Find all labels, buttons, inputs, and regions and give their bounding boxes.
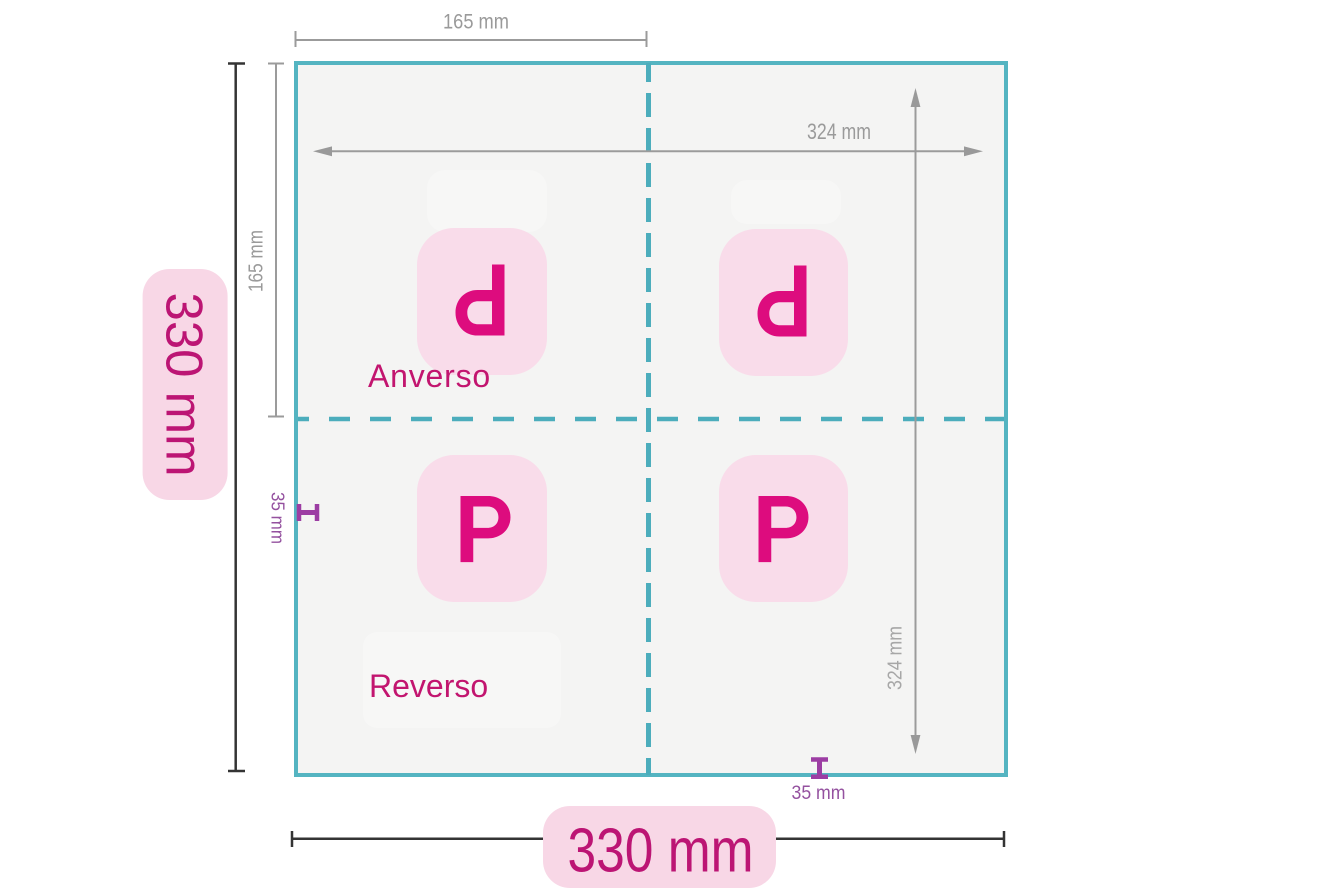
svg-text:35 mm: 35 mm — [792, 782, 846, 804]
svg-text:324 mm: 324 mm — [807, 119, 871, 144]
svg-text:330 mm: 330 mm — [568, 817, 754, 886]
svg-text:35 mm: 35 mm — [268, 492, 288, 544]
svg-text:Reverso: Reverso — [369, 668, 488, 704]
svg-text:324 mm: 324 mm — [885, 626, 907, 690]
svg-text:165 mm: 165 mm — [246, 230, 268, 292]
svg-text:330 mm: 330 mm — [155, 293, 213, 477]
svg-text:165 mm: 165 mm — [443, 10, 509, 34]
svg-text:Anverso: Anverso — [368, 358, 491, 394]
